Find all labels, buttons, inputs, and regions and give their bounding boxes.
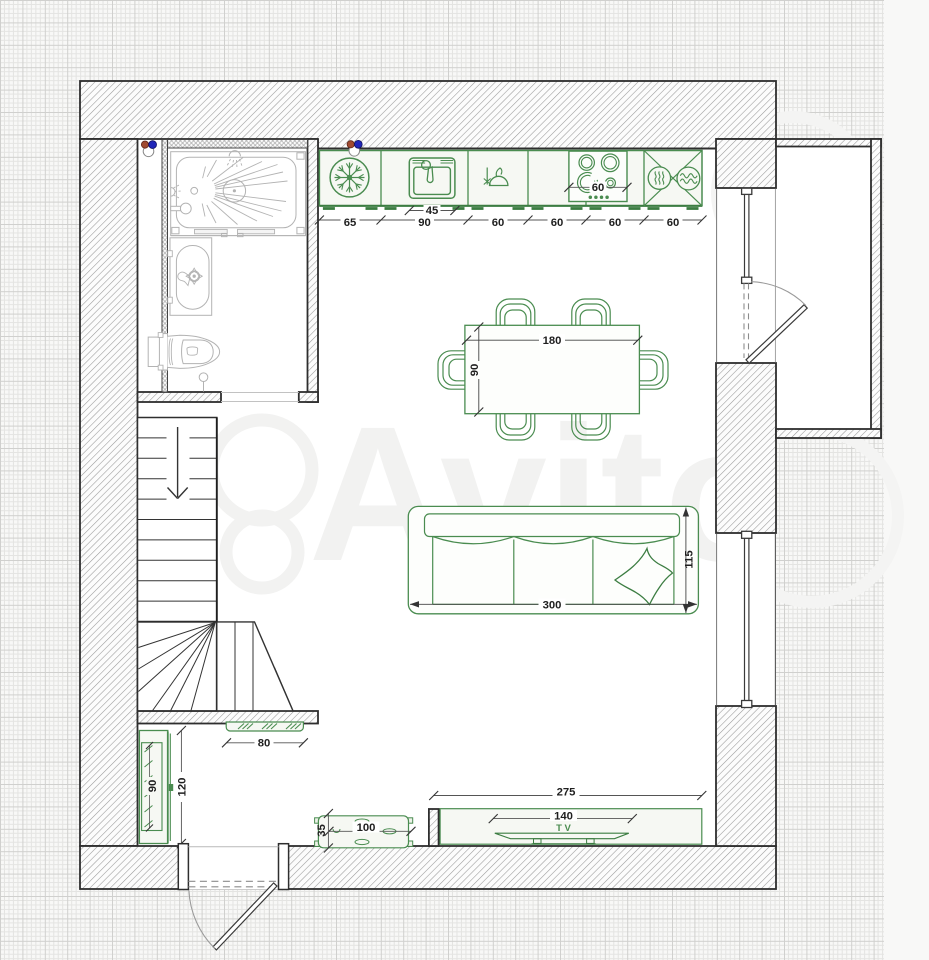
svg-text:90: 90 [147,780,159,793]
svg-text:60: 60 [492,217,505,229]
svg-text:T V: T V [556,823,571,834]
svg-text:180: 180 [543,335,562,347]
svg-text:120: 120 [176,778,188,797]
svg-text:45: 45 [426,205,439,217]
svg-text:65: 65 [344,217,357,229]
svg-text:275: 275 [557,786,576,798]
svg-text:300: 300 [543,599,562,611]
svg-text:60: 60 [592,182,605,194]
svg-text:60: 60 [667,217,680,229]
svg-text:80: 80 [258,738,271,750]
svg-text:90: 90 [418,217,431,229]
svg-text:60: 60 [609,217,622,229]
svg-text:60: 60 [551,217,564,229]
svg-text:115: 115 [684,550,696,568]
svg-text:100: 100 [357,822,376,834]
svg-text:140: 140 [554,810,573,822]
svg-text:90: 90 [469,364,481,377]
svg-text:35: 35 [316,824,328,837]
